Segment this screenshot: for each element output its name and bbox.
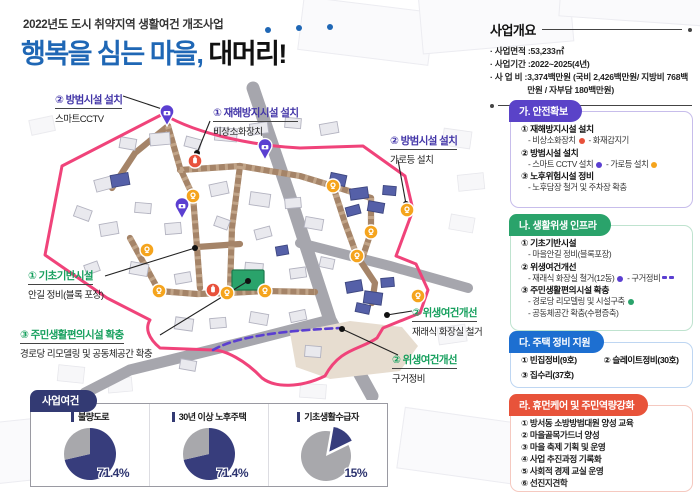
card-ra-title: 라. 휴먼케어 및 주민역량강화 <box>509 394 648 416</box>
callout-disaster: ① 재해방지시설 설치 비상소화장치 <box>213 103 298 138</box>
label-bar <box>71 412 74 422</box>
pie-group-welfare: 기초생활수급자 15% <box>268 404 387 486</box>
callout-cctv: ② 방범시설 설치 스마트CCTV <box>55 90 122 125</box>
callout-toilet: ② 위생여건개선 재래식 화장실 철거 <box>412 303 482 338</box>
pie-group-old-houses: 30년 이상 노후주택 71.4% <box>149 404 268 486</box>
fire-hydrant-icon <box>188 154 202 168</box>
legend-dot-lamp <box>651 162 657 168</box>
streetlight-icon <box>220 286 234 300</box>
conditions-heading: 사업여건 <box>30 390 97 412</box>
page-title-black: 대머리! <box>208 39 286 69</box>
decorative-dot <box>296 25 302 31</box>
divider-dot <box>688 28 692 32</box>
housing-item: ① 빈집정비(9호) <box>521 354 603 366</box>
streetlight-icon <box>411 289 425 303</box>
streetlight-icon <box>400 203 414 217</box>
card-na-title: 나. 생활위생 인프라 <box>509 214 611 236</box>
streetlight-icon <box>350 249 364 263</box>
housing-item: ② 슬레이트정비(30호) <box>603 354 682 366</box>
legend-dot-senior-center <box>628 299 634 305</box>
callout-streetlight: ② 방범시설 설치 가로등 설치 <box>390 131 457 166</box>
background-sketch <box>396 407 525 485</box>
legend-dash-ditch <box>662 276 667 279</box>
overview-item-area: · 사업면적 : 53,233㎡ <box>490 45 692 58</box>
overview-heading: 사업개요 <box>490 20 536 39</box>
pie-value: 15% <box>344 466 367 480</box>
cctv-icon <box>160 105 174 126</box>
legend-dot-cctv <box>596 162 602 168</box>
poster-canvas: 2022년도 도시 취약지역 생활여건 개조사업 행복을 심는 마을, 대머리!… <box>0 0 700 497</box>
background-sketch <box>297 0 435 66</box>
fire-hydrant-icon <box>206 283 220 297</box>
pie-value: 71.4% <box>216 466 248 480</box>
legend-dash-ditch <box>669 276 674 279</box>
pie-group-roads: 불량도로 71.4% <box>31 404 149 486</box>
card-safety: ① 재해방지시설 설치 - 비상소화장치 - 화재감지기 ② 방범시설 설치 -… <box>510 111 693 208</box>
legend-dot-fire <box>579 138 585 144</box>
callout-basic-infra: ① 기초기반시설 안길 정비(블록 포장) <box>28 266 104 301</box>
decorative-dot <box>265 27 271 33</box>
pie-value: 71.4% <box>97 466 129 480</box>
label-bar <box>297 412 300 422</box>
callout-senior-center: ③ 주민생활편의시설 확충 경로당 리모델링 및 공동체공간 확충 <box>20 325 152 360</box>
overview-item-period: · 사업기간 : 2022~2025(4년) <box>490 58 692 71</box>
page-title: 행복을 심는 마을, 대머리! <box>21 32 286 71</box>
card-human-care: ① 방서동 소방방범대원 양성 교육 ② 마을골목가드너 양성 ③ 마을 축제 … <box>510 405 693 492</box>
label-bar <box>172 412 175 422</box>
streetlight-icon <box>364 225 378 239</box>
project-subtitle: 2022년도 도시 취약지역 생활여건 개조사업 <box>23 16 223 32</box>
streetlight-icon <box>326 179 340 193</box>
project-overview: 사업개요 · 사업면적 : 53,233㎡ · 사업기간 : 2022~2025… <box>490 20 692 108</box>
streetlight-icon <box>152 284 166 298</box>
streetlight-icon <box>140 243 154 257</box>
page-title-blue: 행복을 심는 마을, <box>21 39 202 69</box>
decorative-dot <box>327 24 333 30</box>
callout-ditch: ② 위생여건개선 구거정비 <box>392 350 457 385</box>
legend-dot-toilet <box>617 276 623 282</box>
card-ga-title: 가. 안전확보 <box>509 100 582 122</box>
card-da-title: 다. 주택 정비 지원 <box>509 331 604 353</box>
card-infra: ① 기초기반시설 - 마을안길 정비(블록포장) ② 위생여건개선 - 재래식 … <box>510 225 693 331</box>
divider <box>542 29 682 30</box>
housing-item: ③ 집수리(37호) <box>521 369 603 381</box>
conditions-panel: 불량도로 71.4% 30년 이상 노후주택 71.4% 기초생활수급자 15% <box>30 403 388 487</box>
cctv-icon <box>175 198 189 219</box>
streetlight-icon <box>258 284 272 298</box>
overview-item-budget: · 사 업 비 : 3,374백만원 (국비 2,426백만원/ 지방비 768… <box>490 71 692 97</box>
